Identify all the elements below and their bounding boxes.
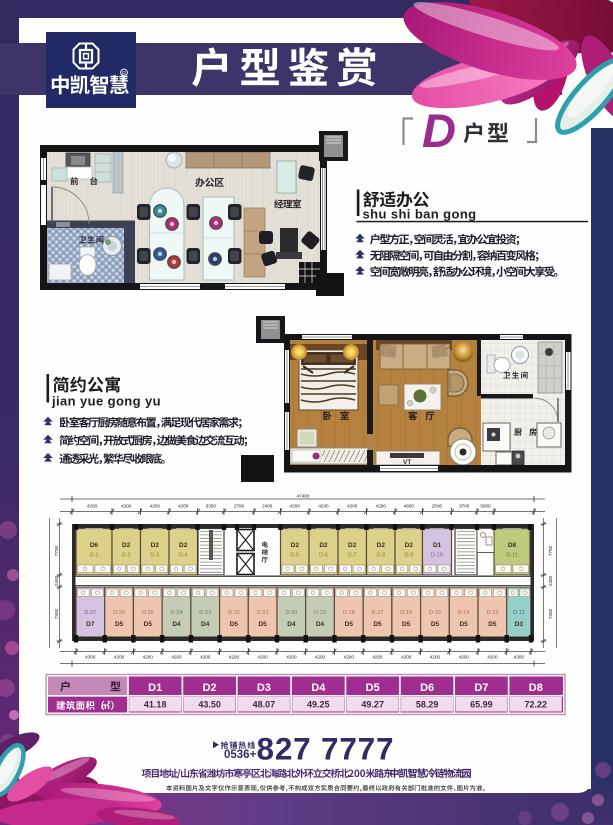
- svg-text:7300: 7300: [548, 608, 553, 619]
- svg-text:3700: 3700: [459, 504, 470, 509]
- svg-text:jian yue gong yu: jian yue gong yu: [51, 394, 161, 409]
- svg-text:D-16: D-16: [400, 610, 412, 616]
- svg-text:4200: 4200: [257, 655, 268, 660]
- svg-text:4200: 4200: [347, 504, 358, 509]
- svg-text:0536+: 0536+: [224, 749, 257, 761]
- svg-text:5000: 5000: [480, 504, 491, 509]
- svg-text:2700: 2700: [234, 504, 245, 509]
- svg-text:D-9: D-9: [404, 553, 413, 559]
- svg-text:D5: D5: [345, 621, 354, 628]
- svg-text:D5: D5: [144, 621, 153, 628]
- svg-text:D-24: D-24: [171, 610, 183, 616]
- svg-text:4300: 4300: [514, 655, 525, 660]
- svg-text:D5: D5: [488, 621, 497, 628]
- svg-text:D-19: D-19: [314, 610, 326, 616]
- svg-text:D-8: D-8: [376, 553, 385, 559]
- svg-text:D-10: D-10: [431, 553, 443, 559]
- svg-text:58.29: 58.29: [416, 700, 439, 710]
- svg-text:43.50: 43.50: [198, 700, 221, 710]
- svg-text:65.99: 65.99: [470, 700, 493, 710]
- svg-text:7700: 7700: [548, 545, 553, 556]
- svg-text:D-4: D-4: [179, 553, 188, 559]
- svg-text:4200: 4200: [372, 655, 383, 660]
- svg-text:D7: D7: [86, 621, 95, 628]
- svg-text:4200: 4200: [376, 504, 387, 509]
- svg-text:D7: D7: [474, 682, 488, 694]
- svg-text:4200: 4200: [290, 504, 301, 509]
- svg-text:3300: 3300: [206, 504, 217, 509]
- svg-text:4200: 4200: [487, 655, 498, 660]
- svg-text:D2: D2: [203, 682, 217, 694]
- svg-text:D-18: D-18: [343, 610, 355, 616]
- svg-text:D2: D2: [179, 542, 188, 549]
- svg-text:4200: 4200: [318, 504, 329, 509]
- svg-text:D2: D2: [122, 542, 131, 549]
- svg-text:D: D: [422, 104, 456, 157]
- svg-text:D-17: D-17: [372, 610, 384, 616]
- svg-text:D5: D5: [230, 621, 239, 628]
- svg-text:D5: D5: [366, 682, 380, 694]
- svg-text:41.18: 41.18: [144, 700, 167, 710]
- svg-text:D4: D4: [316, 621, 325, 628]
- svg-text:D2: D2: [405, 542, 414, 549]
- svg-text:D-7: D-7: [348, 553, 357, 559]
- svg-text:D5: D5: [431, 621, 440, 628]
- svg-text:4200: 4200: [121, 504, 132, 509]
- svg-text:D5: D5: [402, 621, 411, 628]
- svg-text:49.27: 49.27: [361, 700, 384, 710]
- svg-text:2500: 2500: [432, 504, 443, 509]
- svg-text:D1: D1: [433, 542, 442, 549]
- svg-text:D2: D2: [319, 542, 328, 549]
- svg-text:7700: 7700: [54, 545, 59, 556]
- svg-text:D-27: D-27: [84, 610, 96, 616]
- svg-text:4200: 4200: [229, 655, 240, 660]
- svg-text:D-12: D-12: [513, 610, 525, 616]
- svg-text:D-6: D-6: [319, 553, 328, 559]
- svg-text:D-22: D-22: [228, 610, 240, 616]
- svg-text:2400: 2400: [262, 504, 273, 509]
- svg-text:D-23: D-23: [199, 610, 211, 616]
- svg-text:D-2: D-2: [122, 553, 131, 559]
- svg-text:D4: D4: [201, 621, 210, 628]
- svg-text:D5: D5: [459, 621, 468, 628]
- svg-text:D-25: D-25: [142, 610, 154, 616]
- svg-text:4200: 4200: [315, 655, 326, 660]
- svg-text:D6: D6: [90, 542, 99, 549]
- svg-text:D8: D8: [508, 542, 517, 549]
- svg-text:4600: 4600: [404, 504, 415, 509]
- svg-text:D2: D2: [151, 542, 160, 549]
- svg-text:4200: 4200: [344, 655, 355, 660]
- svg-text:2400: 2400: [548, 575, 553, 586]
- svg-text:4200: 4200: [87, 504, 98, 509]
- svg-text:D-5: D-5: [290, 553, 299, 559]
- svg-text:827 7777: 827 7777: [257, 731, 395, 767]
- svg-text:4200: 4200: [286, 655, 297, 660]
- svg-text:D-1: D-1: [90, 553, 99, 559]
- svg-text:D1: D1: [148, 682, 162, 694]
- svg-text:D4: D4: [287, 621, 296, 628]
- svg-text:47400: 47400: [297, 494, 310, 499]
- svg-text:4300: 4300: [85, 655, 96, 660]
- svg-text:D-26: D-26: [113, 610, 125, 616]
- svg-text:D3: D3: [257, 682, 271, 694]
- svg-text:D5: D5: [373, 621, 382, 628]
- svg-text:4200: 4200: [401, 655, 412, 660]
- svg-text:D2: D2: [291, 542, 300, 549]
- svg-text:4200: 4200: [178, 504, 189, 509]
- svg-text:D8: D8: [529, 682, 543, 694]
- svg-text:D2: D2: [377, 542, 386, 549]
- svg-text:D5: D5: [115, 621, 124, 628]
- svg-text:shu shi ban gong: shu shi ban gong: [363, 206, 477, 221]
- svg-text:2400: 2400: [54, 575, 59, 586]
- svg-text:D4: D4: [172, 621, 181, 628]
- svg-text:7300: 7300: [54, 608, 59, 619]
- svg-text:4200: 4200: [200, 655, 211, 660]
- svg-text:72.22: 72.22: [525, 700, 548, 710]
- svg-text:D-13: D-13: [486, 610, 498, 616]
- svg-text:4200: 4200: [458, 655, 469, 660]
- svg-text:VT: VT: [403, 459, 411, 466]
- svg-text:4200: 4200: [150, 504, 161, 509]
- svg-text:48.07: 48.07: [253, 700, 276, 710]
- svg-text:R: R: [122, 71, 126, 77]
- svg-text:D-11: D-11: [506, 553, 518, 559]
- svg-text:D2: D2: [348, 542, 357, 549]
- svg-text:D-14: D-14: [458, 610, 470, 616]
- svg-text:D-21: D-21: [257, 610, 269, 616]
- svg-text:4200: 4200: [171, 655, 182, 660]
- svg-text:D-3: D-3: [150, 553, 159, 559]
- svg-text:4200: 4200: [114, 655, 125, 660]
- svg-text:4200: 4200: [430, 655, 441, 660]
- svg-text:4200: 4200: [143, 655, 154, 660]
- svg-text:D-15: D-15: [429, 610, 441, 616]
- svg-text:D5: D5: [258, 621, 267, 628]
- svg-text:49.25: 49.25: [307, 700, 330, 710]
- svg-text:D-20: D-20: [285, 610, 297, 616]
- svg-text:D4: D4: [311, 682, 326, 694]
- svg-text:D6: D6: [420, 682, 434, 694]
- svg-text:D3: D3: [515, 621, 524, 628]
